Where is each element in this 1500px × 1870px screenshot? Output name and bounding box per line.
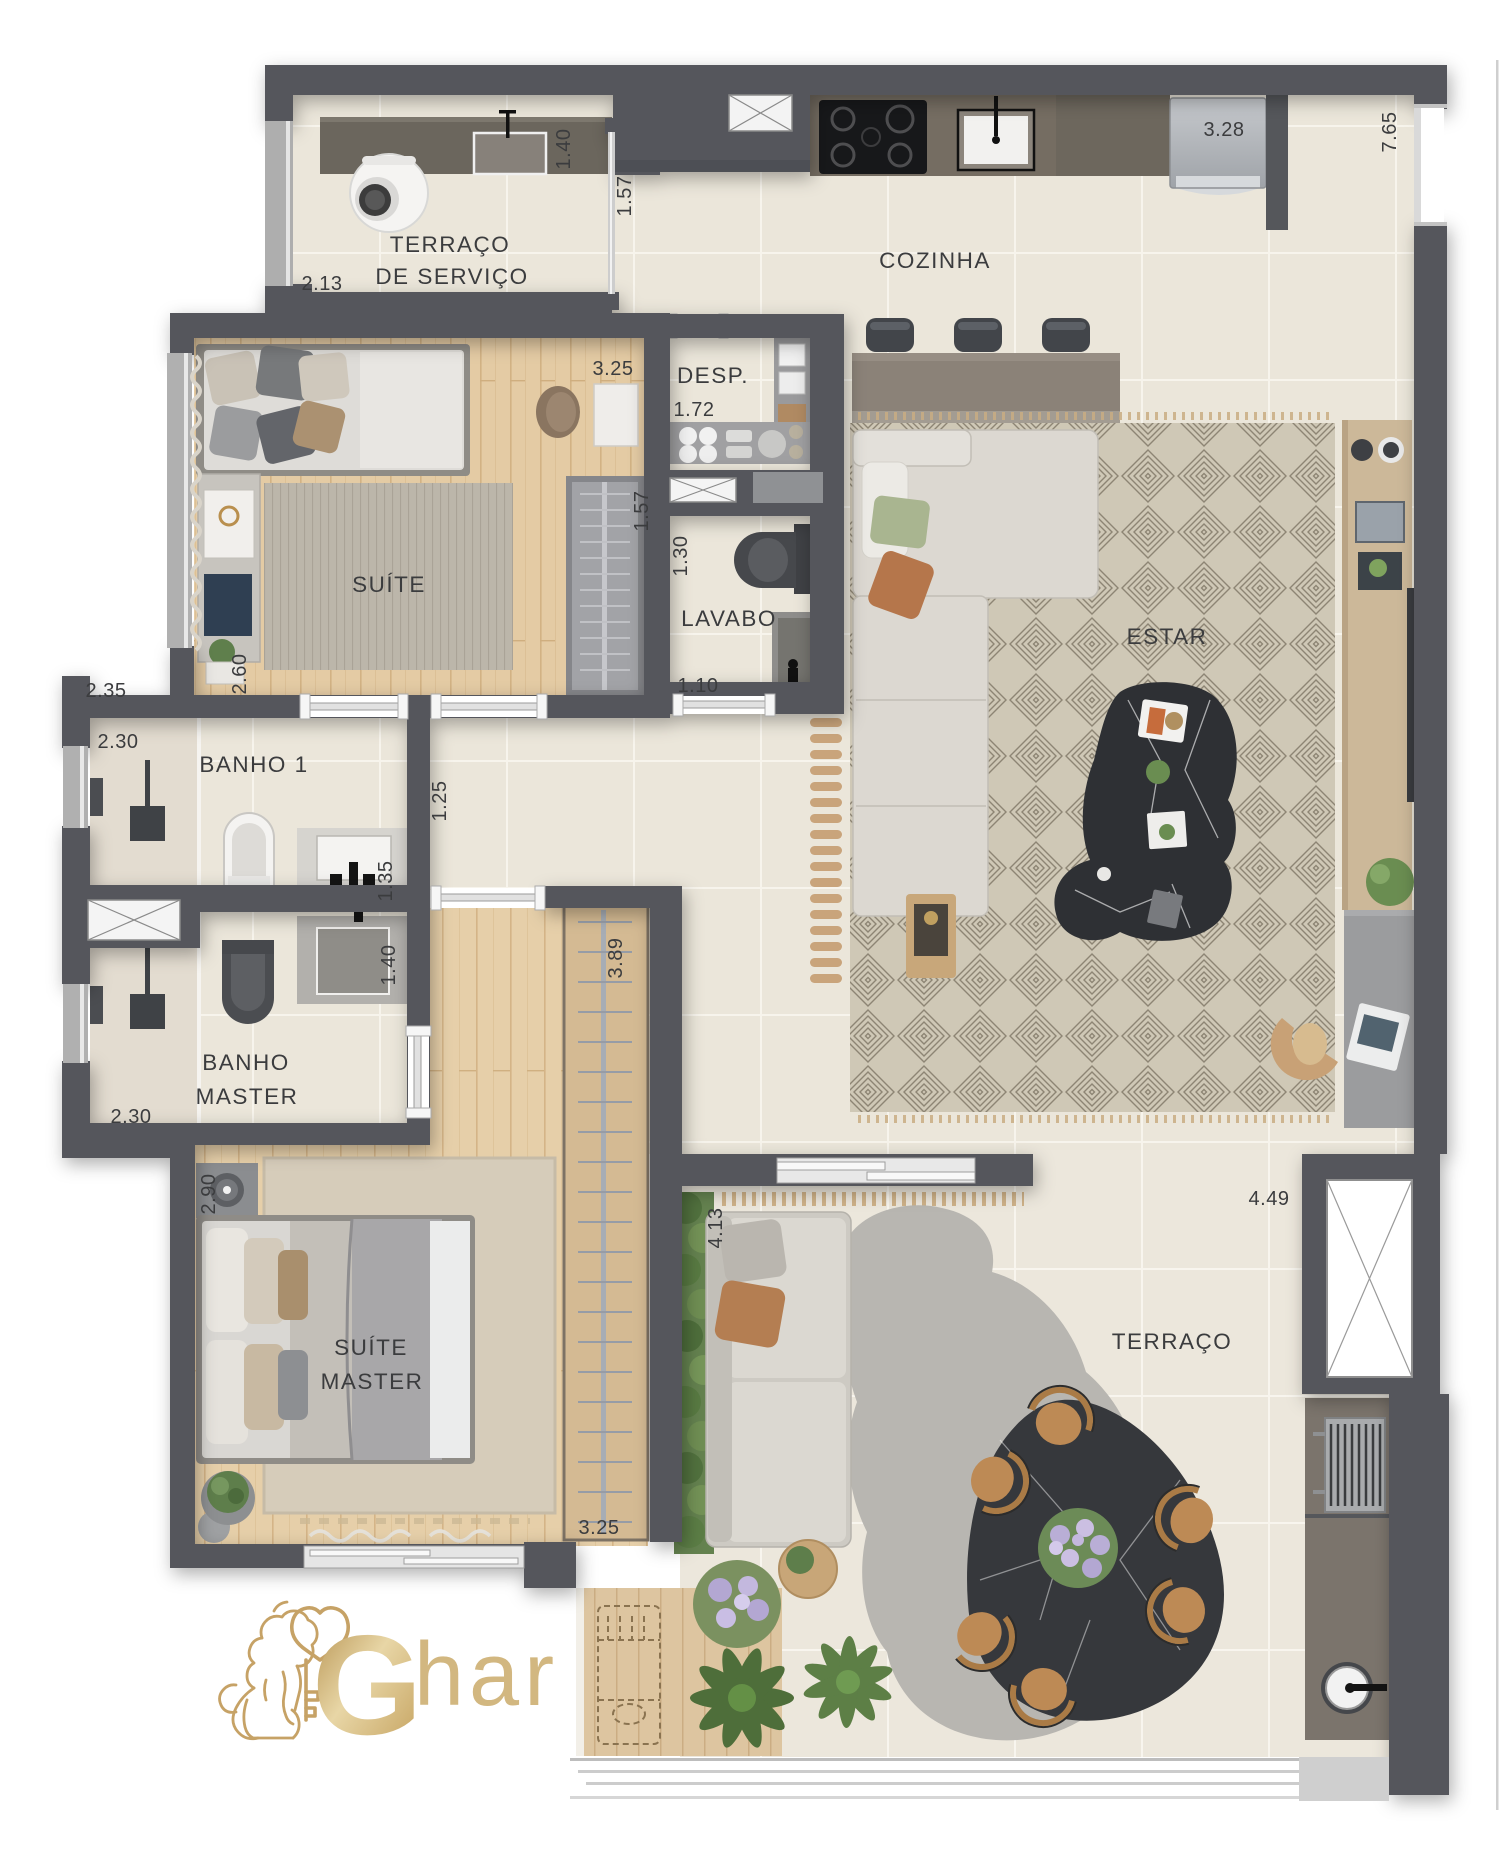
svg-text:2.30: 2.30 xyxy=(111,1106,152,1128)
svg-text:1.40: 1.40 xyxy=(553,129,575,170)
svg-text:4.49: 4.49 xyxy=(1249,1188,1290,1210)
svg-text:3.89: 3.89 xyxy=(605,938,627,979)
svg-text:1.40: 1.40 xyxy=(378,945,400,986)
svg-text:LAVABO: LAVABO xyxy=(681,606,777,631)
svg-text:COZINHA: COZINHA xyxy=(879,248,991,273)
svg-text:1.35: 1.35 xyxy=(375,861,397,902)
svg-text:DE SERVIÇO: DE SERVIÇO xyxy=(375,264,528,289)
svg-text:TERRAÇO: TERRAÇO xyxy=(1112,1329,1233,1354)
svg-text:2.35: 2.35 xyxy=(86,680,127,702)
svg-text:2.60: 2.60 xyxy=(229,654,251,695)
svg-text:3.25: 3.25 xyxy=(579,1517,620,1539)
svg-text:SUÍTE: SUÍTE xyxy=(334,1335,408,1360)
svg-text:2.13: 2.13 xyxy=(302,273,343,295)
svg-text:1.10: 1.10 xyxy=(678,675,719,697)
svg-text:1.30: 1.30 xyxy=(670,536,692,577)
svg-text:ESTAR: ESTAR xyxy=(1127,624,1208,649)
svg-text:MASTER: MASTER xyxy=(196,1084,299,1109)
svg-text:3.25: 3.25 xyxy=(593,358,634,380)
svg-text:har: har xyxy=(414,1625,559,1725)
svg-text:SUÍTE: SUÍTE xyxy=(352,572,426,597)
svg-text:1.72: 1.72 xyxy=(674,399,715,421)
svg-text:1.57: 1.57 xyxy=(631,491,653,532)
svg-text:G: G xyxy=(312,1606,422,1765)
svg-text:1.57: 1.57 xyxy=(614,176,636,217)
svg-text:4.13: 4.13 xyxy=(705,1208,727,1249)
svg-text:2.90: 2.90 xyxy=(198,1174,220,1215)
svg-text:3.28: 3.28 xyxy=(1204,119,1245,141)
svg-text:BANHO: BANHO xyxy=(202,1050,290,1075)
svg-text:1.25: 1.25 xyxy=(429,781,451,822)
svg-text:MASTER: MASTER xyxy=(321,1369,424,1394)
svg-text:2.30: 2.30 xyxy=(98,731,139,753)
svg-text:TERRAÇO: TERRAÇO xyxy=(390,232,511,257)
svg-text:7.65: 7.65 xyxy=(1379,112,1401,153)
svg-text:DESP.: DESP. xyxy=(677,363,749,388)
svg-text:BANHO 1: BANHO 1 xyxy=(199,752,308,777)
